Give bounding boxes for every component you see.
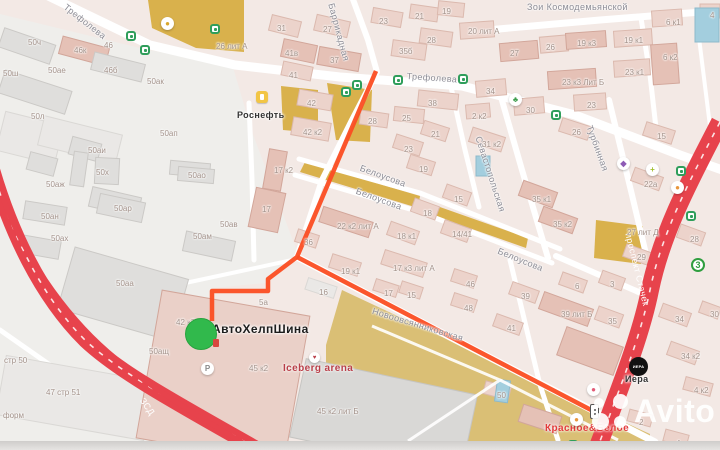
building-number-label: 19: [442, 7, 451, 16]
building-number-label: 50ах: [51, 234, 68, 243]
tram-stop-icon[interactable]: [393, 75, 403, 85]
building-number-label: 21: [431, 130, 440, 139]
building-number-label: 50ам: [193, 232, 212, 241]
building: [538, 292, 593, 327]
building-number-label: 50ар: [114, 204, 132, 213]
building-number-label: 15: [407, 291, 416, 300]
building-number-label: стр 50: [4, 356, 27, 365]
building-number-label: 50ш: [3, 69, 18, 78]
building-number-label: 46: [104, 41, 113, 50]
building-number-label: 28: [427, 36, 436, 45]
building-number-label: 42: [307, 99, 316, 108]
building-number-label: 23 к3 Лит Б: [562, 78, 604, 87]
building-number-label: 48: [464, 304, 473, 313]
building-number-label: 26 лит А: [216, 42, 247, 51]
building-number-label: 46: [466, 280, 475, 289]
iceberg-arena-icon[interactable]: ♥: [309, 352, 320, 363]
building-number-label: 50х: [96, 168, 109, 177]
iceberg-arena-label[interactable]: Iceberg arena: [283, 363, 353, 374]
rosneft-label[interactable]: Роснефть: [237, 110, 285, 120]
building-number-label: 41: [289, 71, 298, 80]
building-number-label: 23: [404, 145, 413, 154]
shopping-cart-icon[interactable]: ●: [671, 181, 684, 194]
building: [409, 4, 439, 22]
shop-icon[interactable]: ●: [161, 17, 174, 30]
building-number-label: 23: [379, 17, 388, 26]
building-number-label: 45 к2: [249, 364, 268, 373]
theater-icon[interactable]: ◆: [617, 157, 630, 170]
building-number-label: 38: [428, 99, 437, 108]
parking-icon[interactable]: P: [201, 362, 214, 375]
building-number-label: 41: [507, 324, 516, 333]
building-number-label: 15: [454, 195, 463, 204]
building-number-label: 5а: [259, 298, 268, 307]
building-number-label: 29: [637, 253, 646, 262]
building-number-label: 17 к3 лит А: [393, 264, 435, 273]
building-number-label: 26: [546, 43, 555, 52]
map-bottom-edge: [0, 441, 720, 450]
building-number-label: 31 к2: [482, 140, 501, 149]
building-number-label: 35б: [399, 47, 412, 56]
building-number-label: 35 к2: [553, 220, 572, 229]
tram-stop-icon[interactable]: [126, 31, 136, 41]
building-number-label: 2 к2: [472, 112, 487, 121]
tram-stop-icon[interactable]: [140, 45, 150, 55]
building-number-label: 36: [304, 238, 313, 247]
tram-stop-icon[interactable]: [676, 166, 686, 176]
building-number-label: 37: [330, 56, 339, 65]
building-number-label: 23: [587, 101, 596, 110]
building-number-label: 22а: [644, 180, 657, 189]
building-number-label: 50ап: [160, 129, 178, 138]
building-number-label: 50ащ: [149, 347, 169, 356]
street-road: [476, 10, 720, 31]
tram-stop-icon[interactable]: [341, 87, 351, 97]
building-number-label: 23 к1: [625, 68, 644, 77]
tram-stop-icon[interactable]: [210, 24, 220, 34]
building-number-label: 14/41: [452, 230, 472, 239]
building-number-label: 34: [675, 315, 684, 324]
building-number-label: 4: [710, 11, 714, 20]
building: [557, 327, 624, 376]
building-number-label: 18 к1: [397, 232, 416, 241]
building-number-label: 25: [402, 114, 411, 123]
building-number-label: 28: [368, 117, 377, 126]
building-number-label: 45 к2 лит Б: [317, 407, 359, 416]
building-number-label: 47 стр 51: [46, 388, 80, 397]
building-number-label: 17: [262, 205, 271, 214]
building-number-label: 50: [497, 391, 506, 400]
building-number-label: 35 к1: [532, 195, 551, 204]
building: [559, 272, 588, 293]
building-number-label: 18: [423, 209, 432, 218]
building-number-label: 50ао: [188, 171, 206, 180]
fuel-station-icon[interactable]: [256, 91, 268, 103]
building-number-label: 39: [521, 292, 530, 301]
building-number-label: 3: [610, 280, 614, 289]
building-number-label: 42 к2: [303, 128, 322, 137]
building-number-label: 20 лит А: [468, 27, 499, 36]
building-number-label: 15: [657, 132, 666, 141]
building-number-label: 19 к1: [624, 36, 643, 45]
building-number-label: 28: [690, 235, 699, 244]
building-number-label: 50ае: [48, 66, 66, 75]
map-canvas[interactable]: ТрефолеваТрефолеваБаррикаднаяЗои Космоде…: [0, 0, 720, 450]
entrance-icon: [213, 339, 219, 347]
building-number-label: 6 к2: [663, 53, 678, 62]
building-number-label: 34 к2: [681, 352, 700, 361]
building-number-label: форм: [3, 411, 24, 420]
avito-watermark: Avito: [592, 393, 715, 430]
tram-stop-icon[interactable]: [551, 110, 561, 120]
building-number-label: 35: [608, 317, 617, 326]
building-number-label: 50ак: [147, 77, 164, 86]
building-number-label: 50аж: [46, 180, 65, 189]
building-number-label: 17: [384, 289, 393, 298]
building-number-label: 6: [575, 282, 579, 291]
building-number-label: 50аа: [116, 279, 134, 288]
building-number-label: 6 к1: [666, 18, 681, 27]
building-number-label: 30: [710, 310, 719, 319]
shopping-cart-icon[interactable]: ●: [570, 413, 583, 426]
building-number-label: 31: [277, 24, 286, 33]
building-number-label: 19 к1: [341, 267, 360, 276]
pharmacy-icon[interactable]: +: [646, 163, 659, 176]
building-number-label: 41в: [285, 49, 298, 58]
building-number-label: 27: [510, 49, 519, 58]
avito-watermark-text: Avito: [634, 393, 715, 430]
park-icon[interactable]: ♣: [509, 93, 522, 106]
building-number-label: 50ан: [41, 212, 59, 221]
building-number-label: 21: [415, 12, 424, 21]
building-number-label: 39 лит Б: [561, 310, 592, 319]
building-number-label: 50ав: [220, 220, 238, 229]
building-number-label: 34: [486, 87, 495, 96]
street-name-label: Зои Космодемьянской: [527, 2, 628, 12]
building-number-label: 22 к2 лит А: [337, 222, 379, 231]
building-number-label: 30: [526, 106, 535, 115]
iera-store-badge[interactable]: ИЕРА: [629, 357, 648, 376]
building: [695, 8, 719, 42]
building: [651, 43, 680, 85]
building-number-label: 27 лит Д: [627, 228, 659, 237]
building-number-label: 19: [419, 165, 428, 174]
avito-logo-icon: [592, 394, 628, 430]
building-number-label: 46б: [104, 66, 117, 75]
building-number-label: 16: [319, 288, 328, 297]
transit-route-badge[interactable]: 3: [691, 258, 705, 272]
building-number-label: 50ч: [28, 38, 41, 47]
tram-stop-icon[interactable]: [686, 211, 696, 221]
building-number-label: 50л: [31, 112, 45, 121]
building-number-label: 26: [572, 128, 581, 137]
building-number-label: 19 к3: [577, 39, 596, 48]
avtohelpshina-label[interactable]: АвтоХелпШина: [212, 322, 309, 336]
building-number-label: 17 к2: [274, 166, 293, 175]
building: [499, 40, 538, 61]
tram-stop-icon[interactable]: [352, 80, 362, 90]
building-number-label: 46к: [74, 46, 86, 55]
building-number-label: 50аи: [88, 146, 106, 155]
building-number-label: 27: [323, 25, 332, 34]
tram-stop-icon[interactable]: [458, 74, 468, 84]
